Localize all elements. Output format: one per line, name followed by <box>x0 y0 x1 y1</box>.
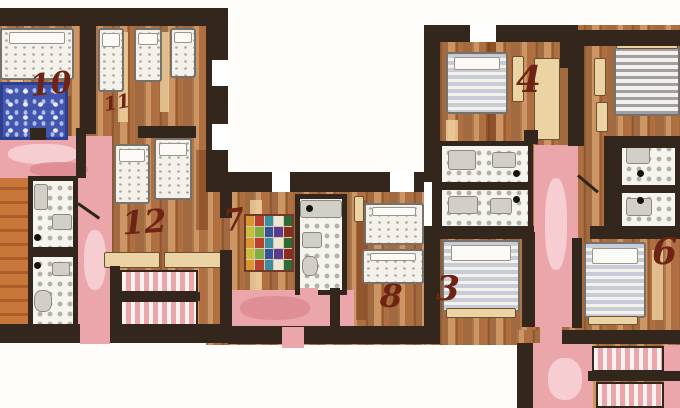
pillow <box>454 57 500 71</box>
room-label-11: 11 <box>103 92 132 115</box>
toilet-fixture <box>34 290 52 312</box>
toilet-dot <box>34 262 41 269</box>
pillow <box>370 253 416 261</box>
corridor-wash <box>545 178 567 270</box>
faucet-dot <box>306 205 313 212</box>
patchwork-cell <box>265 216 273 226</box>
footboard <box>588 316 638 325</box>
window <box>390 172 414 192</box>
wall <box>0 8 228 26</box>
patchwork-rug <box>244 214 294 272</box>
pillow <box>372 207 417 217</box>
sink-fixture <box>52 262 70 276</box>
room-label-8: 8 <box>379 279 403 312</box>
wall <box>76 128 86 178</box>
wall <box>228 326 440 344</box>
sink-fixture <box>448 150 476 170</box>
patchwork-cell <box>246 216 254 226</box>
shower-fixture <box>448 196 478 214</box>
wall <box>428 226 534 239</box>
patchwork-cell <box>265 238 273 248</box>
door-opening-left <box>80 325 110 344</box>
room-label-4: 4 <box>516 62 541 98</box>
pillow <box>9 32 65 44</box>
patchwork-cell <box>274 238 282 248</box>
sink-fixture <box>626 146 650 164</box>
corridor-wash <box>548 358 582 400</box>
nightstand <box>594 58 606 96</box>
patchwork-cell <box>284 238 292 248</box>
pillow <box>174 32 192 43</box>
patchwork-cell <box>255 249 263 259</box>
patchwork-cell <box>246 249 254 259</box>
bed-room-12 <box>154 138 192 200</box>
door-handle-dot <box>637 170 644 177</box>
bathroom-divider-wall <box>441 182 529 190</box>
shower-fixture <box>34 184 48 210</box>
wall <box>604 136 618 236</box>
room-label-12: 12 <box>121 204 168 239</box>
wood-sideboard-strip <box>0 178 28 330</box>
window <box>212 60 228 86</box>
wall <box>572 238 582 328</box>
patchwork-cell <box>246 238 254 248</box>
patchwork-cell <box>284 216 292 226</box>
patchwork-cell <box>274 216 282 226</box>
sink-fixture <box>302 232 322 248</box>
room-label-3: 3 <box>435 272 460 307</box>
stairwell-wall <box>110 266 120 326</box>
stair-divider-wall <box>588 371 680 381</box>
bed-room-11 <box>98 28 124 92</box>
stairs-right-lower-flight <box>596 382 664 408</box>
stair-divider-wall <box>114 292 200 301</box>
patchwork-cell <box>274 227 282 237</box>
wall <box>560 330 680 344</box>
sink-fixture <box>52 214 72 230</box>
corridor-wash <box>8 144 78 164</box>
wall <box>517 343 533 408</box>
patchwork-cell <box>265 227 273 237</box>
patchwork-cell <box>255 216 263 226</box>
bed-room-11 <box>134 28 162 82</box>
bed-room-8 <box>364 203 424 245</box>
patchwork-cell <box>284 249 292 259</box>
nightstand <box>596 102 608 132</box>
corridor-wash <box>240 296 310 320</box>
door-handle-dot <box>637 197 644 204</box>
wall <box>206 8 228 178</box>
patchwork-cell <box>246 260 254 270</box>
wall <box>568 30 680 46</box>
patchwork-cell <box>284 227 292 237</box>
stairs-left-upper-flight <box>120 270 198 293</box>
patchwork-cell <box>265 260 273 270</box>
bathroom-door-gap <box>300 288 318 297</box>
wall <box>522 232 535 327</box>
pillow <box>119 149 145 162</box>
wall <box>138 126 196 138</box>
door-opening-middle <box>282 327 304 348</box>
door-opening-right <box>540 327 562 344</box>
floor-plan: 10 11 12 7 8 3 4 6 <box>0 0 680 408</box>
patchwork-cell <box>255 227 263 237</box>
wall <box>560 28 576 68</box>
door-handle-dot <box>513 196 520 203</box>
patchwork-cell <box>265 249 273 259</box>
window <box>470 25 496 42</box>
window <box>424 182 432 226</box>
stairs-right-upper-flight <box>592 346 664 372</box>
pillow <box>159 143 186 157</box>
patchwork-cell <box>255 260 263 270</box>
stairs-left-lower-flight <box>120 300 198 326</box>
pillow <box>592 248 638 264</box>
sink-fixture <box>490 198 512 214</box>
nightstand <box>354 196 364 222</box>
room-label-6: 6 <box>652 234 677 270</box>
dresser <box>164 252 226 268</box>
patchwork-cell <box>284 260 292 270</box>
wall <box>608 136 680 148</box>
corridor-wash <box>84 230 106 290</box>
wall <box>30 128 46 140</box>
sink-fixture <box>492 152 516 168</box>
pillow <box>138 33 157 45</box>
door-handle-dot <box>513 170 520 177</box>
window <box>272 172 290 192</box>
wall <box>110 324 230 343</box>
wall <box>436 25 578 42</box>
window <box>212 124 228 150</box>
wall <box>80 8 96 134</box>
bed-room-11 <box>170 28 196 78</box>
patchwork-cell <box>274 260 282 270</box>
bed-room-12 <box>114 144 150 204</box>
pillow <box>451 245 510 261</box>
wall <box>0 324 80 343</box>
patchwork-cell <box>274 249 282 259</box>
bed-room-6 <box>584 242 646 318</box>
toilet-dot <box>34 234 41 241</box>
toilet-fixture <box>302 256 318 276</box>
wall <box>330 288 340 326</box>
patchwork-cell <box>255 238 263 248</box>
wall <box>220 250 232 326</box>
footboard <box>446 308 516 318</box>
pillow <box>102 33 120 47</box>
wall <box>524 130 538 144</box>
room-label-10: 10 <box>29 68 74 102</box>
bed-top-right-room <box>614 46 680 116</box>
bathroom-divider-wall <box>621 185 676 193</box>
bed-room-4 <box>446 52 508 114</box>
room-label-7: 7 <box>222 205 247 238</box>
